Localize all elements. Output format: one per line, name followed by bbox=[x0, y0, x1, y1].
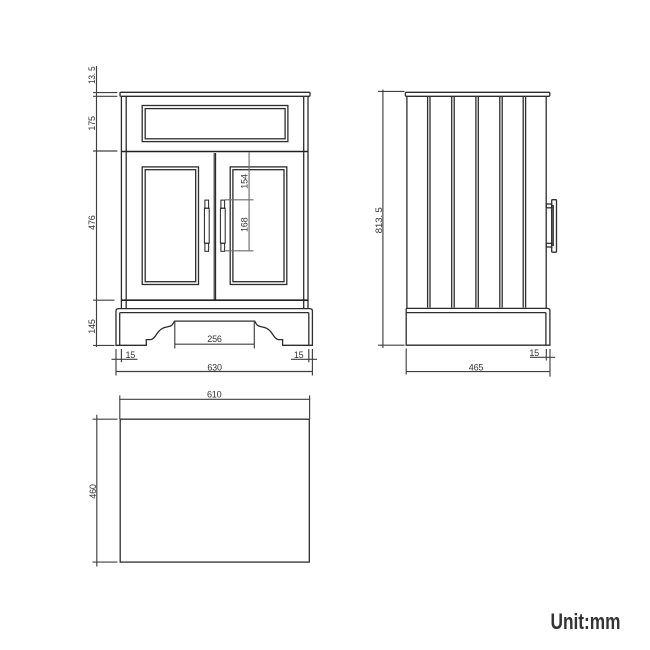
svg-text:476: 476 bbox=[87, 215, 97, 230]
svg-text:168: 168 bbox=[239, 217, 249, 232]
svg-text:630: 630 bbox=[207, 362, 222, 372]
svg-text:175: 175 bbox=[87, 116, 97, 131]
svg-text:460: 460 bbox=[88, 484, 98, 499]
svg-text:Unit:mm: Unit:mm bbox=[551, 609, 621, 634]
svg-text:13. 5: 13. 5 bbox=[87, 66, 97, 84]
svg-text:256: 256 bbox=[207, 334, 222, 344]
svg-text:813. 5: 813. 5 bbox=[374, 207, 384, 233]
svg-text:15: 15 bbox=[294, 350, 304, 360]
svg-text:15: 15 bbox=[529, 348, 539, 358]
svg-text:610: 610 bbox=[207, 390, 222, 400]
svg-text:145: 145 bbox=[87, 319, 97, 334]
svg-text:465: 465 bbox=[469, 363, 484, 373]
svg-text:15: 15 bbox=[125, 350, 135, 360]
svg-text:154: 154 bbox=[239, 174, 249, 189]
